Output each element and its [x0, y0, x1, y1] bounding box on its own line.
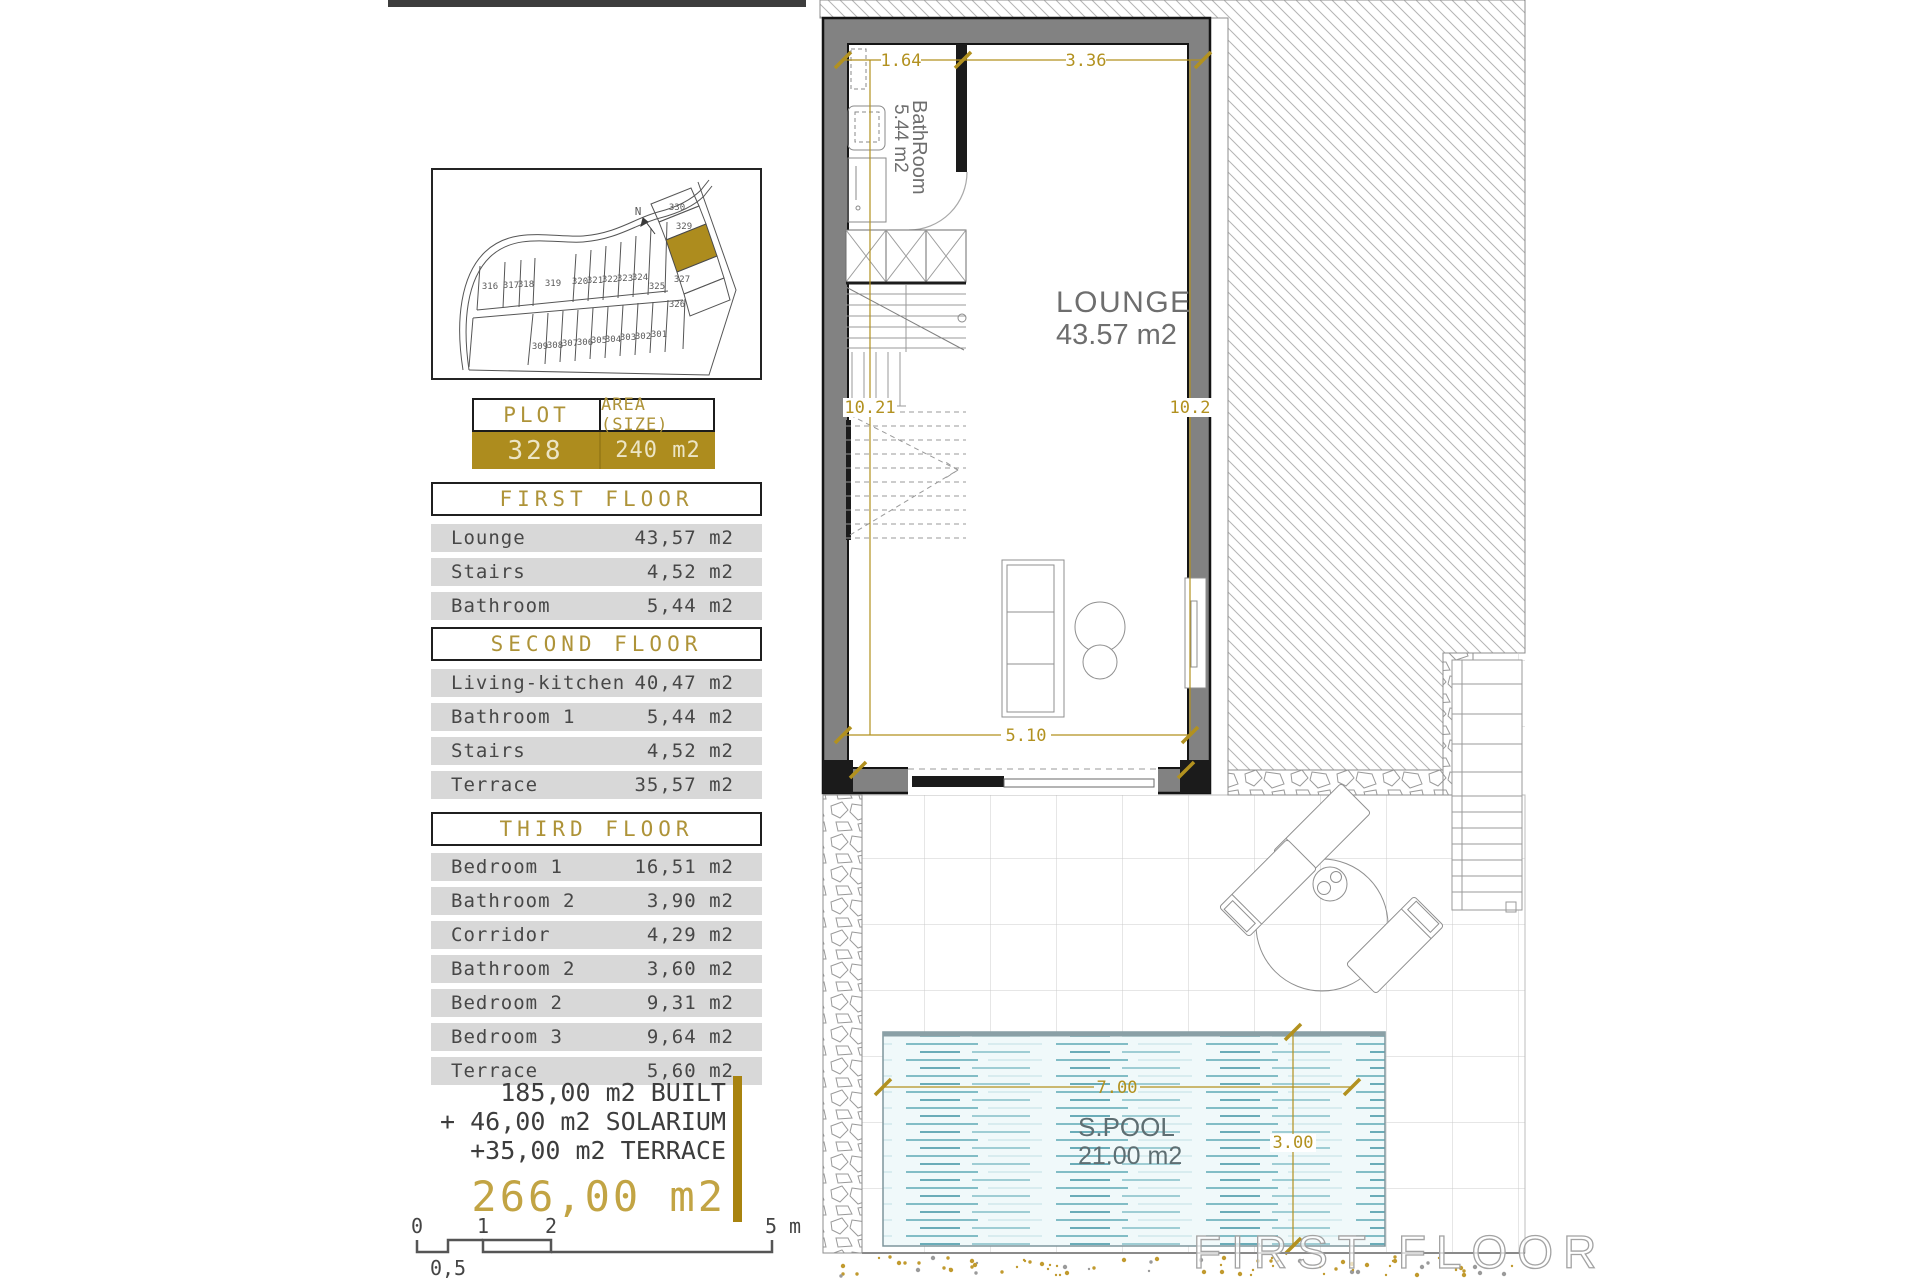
plot-number: 318 [518, 280, 534, 290]
total-terrace: +35,00 m2 TERRACE [430, 1136, 726, 1165]
dim-left-height: 10.21 [844, 398, 895, 418]
row-label: Bedroom 2 [431, 992, 563, 1014]
scale-tick-0: 0 [411, 1215, 423, 1238]
totals-block: 185,00 m2 BUILT + 46,00 m2 SOLARIUM +35,… [430, 1078, 726, 1165]
row-area: 4,52 m2 [647, 561, 762, 583]
wall-segment [846, 420, 851, 540]
third-floor-header: THIRD FLOOR [431, 812, 762, 846]
row-label: Lounge [431, 527, 526, 549]
plot-number: 317 [503, 281, 519, 291]
row-area: 16,51 m2 [634, 856, 762, 878]
scale-tick-05: 0,5 [430, 1256, 466, 1280]
steps-structure [1452, 660, 1522, 912]
table-row: Bathroom 1 5,44 m2 [431, 703, 762, 731]
area-header-cell: AREA (SIZE) [601, 400, 713, 430]
plot-number: 307 [562, 339, 578, 349]
table-row: Stairs 4,52 m2 [431, 737, 762, 765]
plot-number: 322 [602, 275, 618, 285]
row-label: Bathroom 2 [431, 890, 575, 912]
row-label: Stairs [431, 740, 526, 762]
row-area: 5,44 m2 [647, 595, 762, 617]
first-floor-watermark: FIRST FLOOR [1193, 1226, 1606, 1278]
north-label: N [635, 205, 642, 218]
side-table [1313, 867, 1347, 901]
first-floor-header: FIRST FLOOR [431, 482, 762, 516]
sliding-door-panel [912, 776, 1004, 787]
plot-header-cell: PLOT [474, 400, 601, 430]
row-label: Corridor [431, 924, 551, 946]
table-row: Bedroom 3 9,64 m2 [431, 1023, 762, 1051]
site-plan-box: N 316 317 318 319 320 321 322 323 324 32… [431, 168, 762, 380]
plot-number: 316 [482, 282, 498, 292]
wardrobe [846, 230, 966, 283]
sliding-door-glass [1004, 779, 1154, 787]
row-area: 3,90 m2 [647, 890, 762, 912]
dim-pool-height: 3.00 [1273, 1133, 1314, 1153]
row-label: Bathroom 1 [431, 706, 575, 728]
plot-number: 319 [545, 279, 561, 289]
row-area: 3,60 m2 [647, 958, 762, 980]
corner-pillar [1180, 760, 1210, 793]
plot-number: 309 [532, 342, 548, 352]
scale-tick-5: 5 m [765, 1215, 801, 1238]
table-row: Living-kitchen 40,47 m2 [431, 669, 762, 697]
dim-bath-width: 1.64 [881, 51, 922, 71]
gold-accent-bar [733, 1076, 742, 1222]
scale-bar: 0 1 2 5 m 0,5 [395, 1215, 825, 1280]
plot-area-value: 240 m2 [601, 432, 715, 469]
row-label: Terrace [431, 774, 538, 796]
plot-number: 326 [669, 300, 685, 310]
table-row: Stairs 4,52 m2 [431, 558, 762, 586]
corner-pillar [823, 760, 853, 793]
plot-number: 324 [632, 273, 648, 283]
table-row: Bathroom 2 3,90 m2 [431, 887, 762, 915]
plot-number: 330 [669, 203, 685, 213]
row-label: Stairs [431, 561, 526, 583]
scale-tick-2: 2 [545, 1215, 557, 1238]
table-row: Lounge 43,57 m2 [431, 524, 762, 552]
row-label: Bedroom 1 [431, 856, 563, 878]
table-row: Bathroom 2 3,60 m2 [431, 955, 762, 983]
dim-right-height: 10.2 [1170, 398, 1211, 418]
plot-number: 323 [617, 274, 633, 284]
row-area: 4,29 m2 [647, 924, 762, 946]
total-built: 185,00 m2 BUILT [430, 1078, 726, 1107]
plot-number: 320 [572, 277, 588, 287]
floor-plan-drawing: 1.64 3.36 10.21 10.2 5.10 7.00 3.00 LOUN… [0, 0, 1920, 1280]
neighbour-wall-strip [388, 0, 806, 7]
plot-number: 303 [620, 333, 636, 343]
table-row: Bedroom 2 9,31 m2 [431, 989, 762, 1017]
total-solarium: + 46,00 m2 SOLARIUM [430, 1107, 726, 1136]
site-plan: N 316 317 318 319 320 321 322 323 324 32… [433, 170, 760, 378]
pool-label: S.POOL [1078, 1112, 1175, 1142]
row-area: 35,57 m2 [634, 774, 762, 796]
row-label: Bedroom 3 [431, 1026, 563, 1048]
table-row: Terrace 35,57 m2 [431, 771, 762, 799]
plot-number: 325 [649, 282, 665, 292]
dim-top-width: 3.36 [1066, 51, 1107, 71]
bathroom-area-label: 5.44 m2 [890, 104, 911, 173]
second-floor-header: SECOND FLOOR [431, 627, 762, 661]
row-area: 9,31 m2 [647, 992, 762, 1014]
scale-tick-1: 1 [477, 1215, 489, 1238]
row-label: Bathroom 2 [431, 958, 575, 980]
row-label: Bathroom [431, 595, 551, 617]
plot-area-table: PLOT AREA (SIZE) 328 240 m2 [472, 398, 715, 469]
plot-number: 301 [651, 330, 667, 340]
table-row: Bathroom 5,44 m2 [431, 592, 762, 620]
dim-bottom-width: 5.10 [1006, 726, 1047, 746]
plot-number: 308 [547, 341, 563, 351]
plot-number: 329 [676, 222, 692, 232]
row-area: 40,47 m2 [634, 672, 762, 694]
dim-pool-width: 7.00 [1097, 1078, 1138, 1098]
plot-number: 302 [635, 332, 651, 342]
table-row: Corridor 4,29 m2 [431, 921, 762, 949]
row-area: 4,52 m2 [647, 740, 762, 762]
stone-path-left [823, 795, 862, 1253]
chair [1083, 645, 1117, 679]
plot-number: 327 [674, 275, 690, 285]
row-area: 9,64 m2 [647, 1026, 762, 1048]
lounge-label: LOUNGE [1056, 286, 1192, 319]
plot-number: 304 [605, 335, 621, 345]
row-area: 43,57 m2 [634, 527, 762, 549]
row-label: Living-kitchen [431, 672, 625, 694]
pool-area-label: 21.00 m2 [1078, 1142, 1182, 1170]
lounge-area-label: 43.57 m2 [1056, 319, 1177, 351]
grand-total: 266,00 m2 [430, 1172, 726, 1221]
table-row: Bedroom 1 16,51 m2 [431, 853, 762, 881]
row-area: 5,44 m2 [647, 706, 762, 728]
plot-number-value: 328 [472, 432, 601, 469]
plot-number: 321 [587, 276, 603, 286]
drawing-sheet: 1.64 3.36 10.21 10.2 5.10 7.00 3.00 LOUN… [0, 0, 1920, 1280]
